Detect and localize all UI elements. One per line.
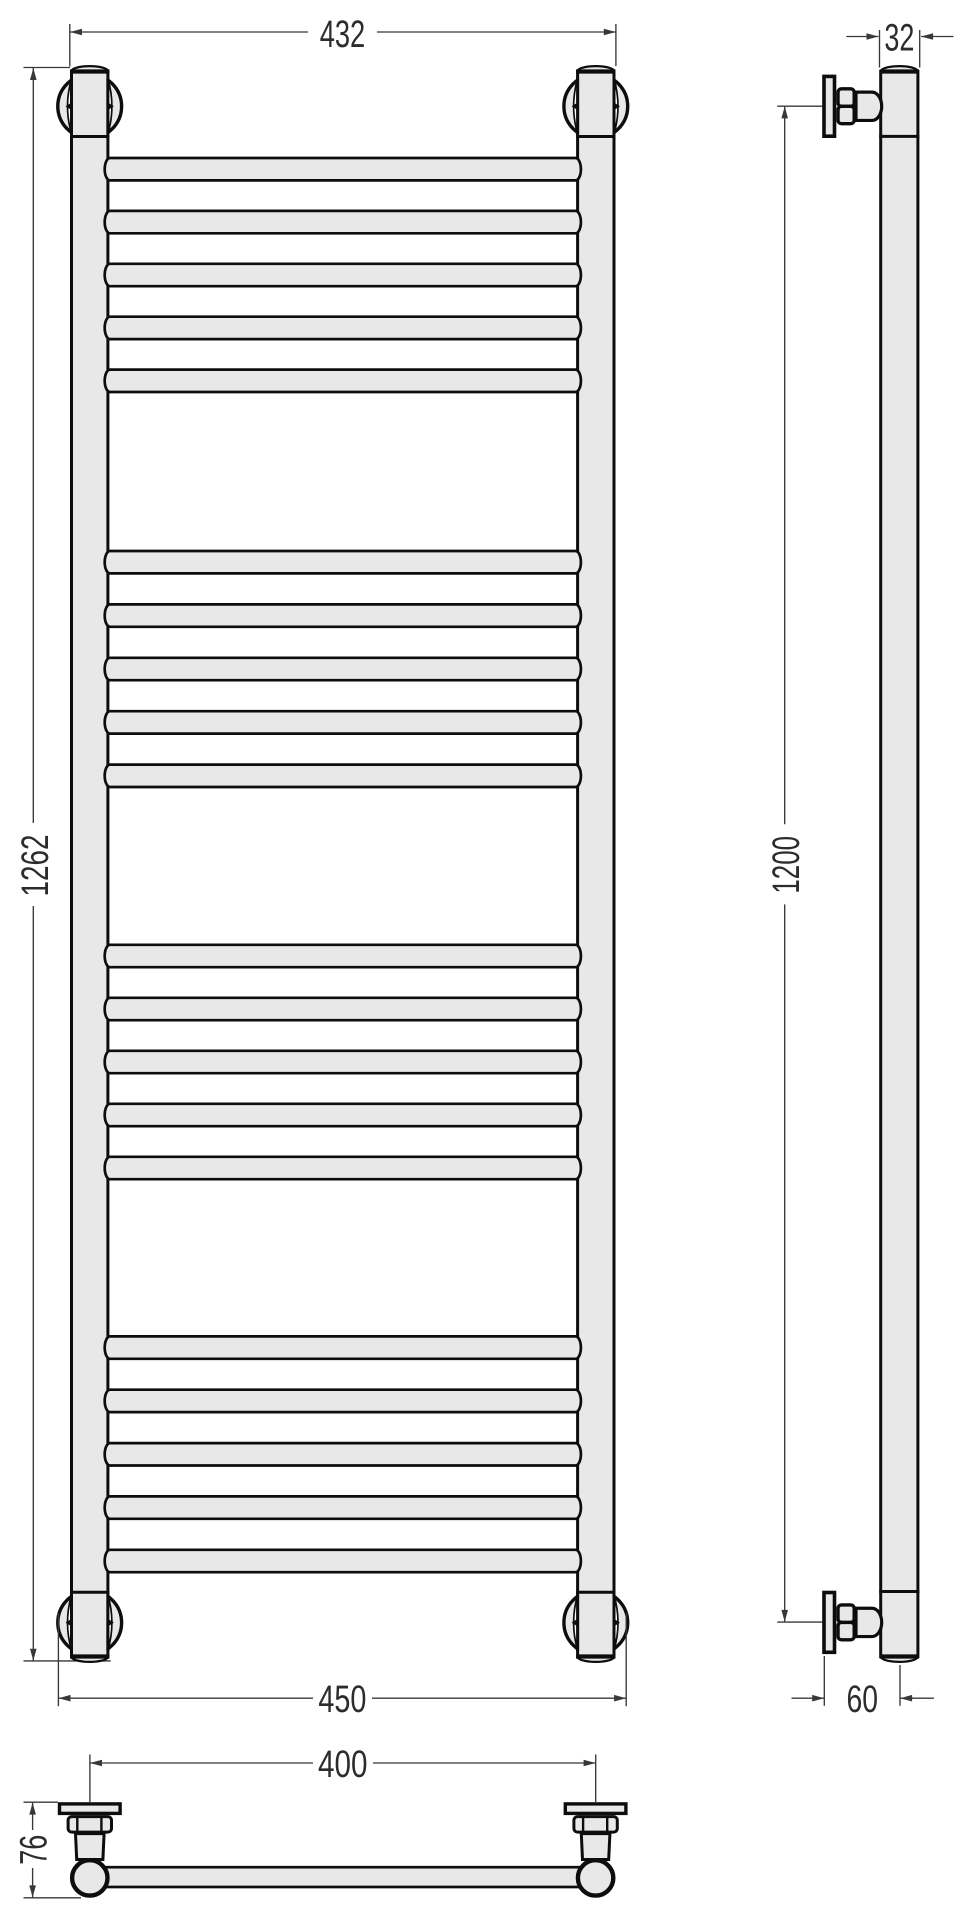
svg-text:1262: 1262 bbox=[14, 835, 57, 897]
svg-text:32: 32 bbox=[884, 17, 914, 60]
svg-text:400: 400 bbox=[318, 1743, 368, 1786]
svg-text:450: 450 bbox=[318, 1678, 366, 1721]
svg-text:60: 60 bbox=[847, 1678, 879, 1721]
svg-text:432: 432 bbox=[320, 13, 366, 56]
svg-text:76: 76 bbox=[13, 1835, 56, 1865]
svg-text:1200: 1200 bbox=[765, 836, 808, 894]
